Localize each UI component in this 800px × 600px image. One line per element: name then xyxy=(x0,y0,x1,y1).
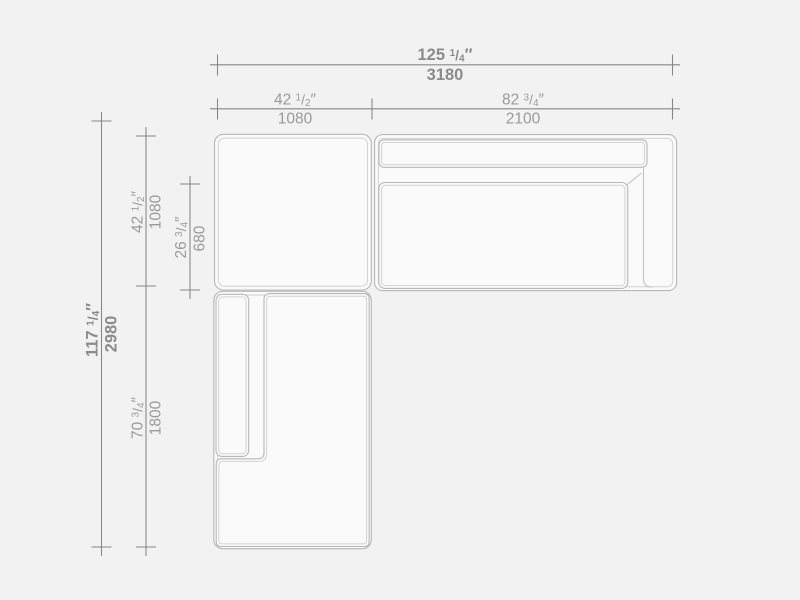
svg-text:2980: 2980 xyxy=(103,316,121,353)
svg-text:82 3/4″: 82 3/4″ xyxy=(502,92,545,110)
svg-text:1800: 1800 xyxy=(148,400,165,435)
svg-text:42 1/2″: 42 1/2″ xyxy=(274,92,317,110)
svg-text:1080: 1080 xyxy=(148,194,165,229)
svg-text:42 1/2″: 42 1/2″ xyxy=(130,190,148,233)
svg-text:117 1/4″: 117 1/4″ xyxy=(84,303,103,357)
svg-text:680: 680 xyxy=(192,225,209,251)
svg-text:2100: 2100 xyxy=(506,111,541,128)
svg-text:1080: 1080 xyxy=(278,111,313,128)
svg-text:3180: 3180 xyxy=(427,66,464,84)
svg-text:26 3/4″: 26 3/4″ xyxy=(173,216,191,259)
svg-text:125 1/4″: 125 1/4″ xyxy=(417,46,472,65)
svg-text:70 3/4″: 70 3/4″ xyxy=(130,396,148,439)
